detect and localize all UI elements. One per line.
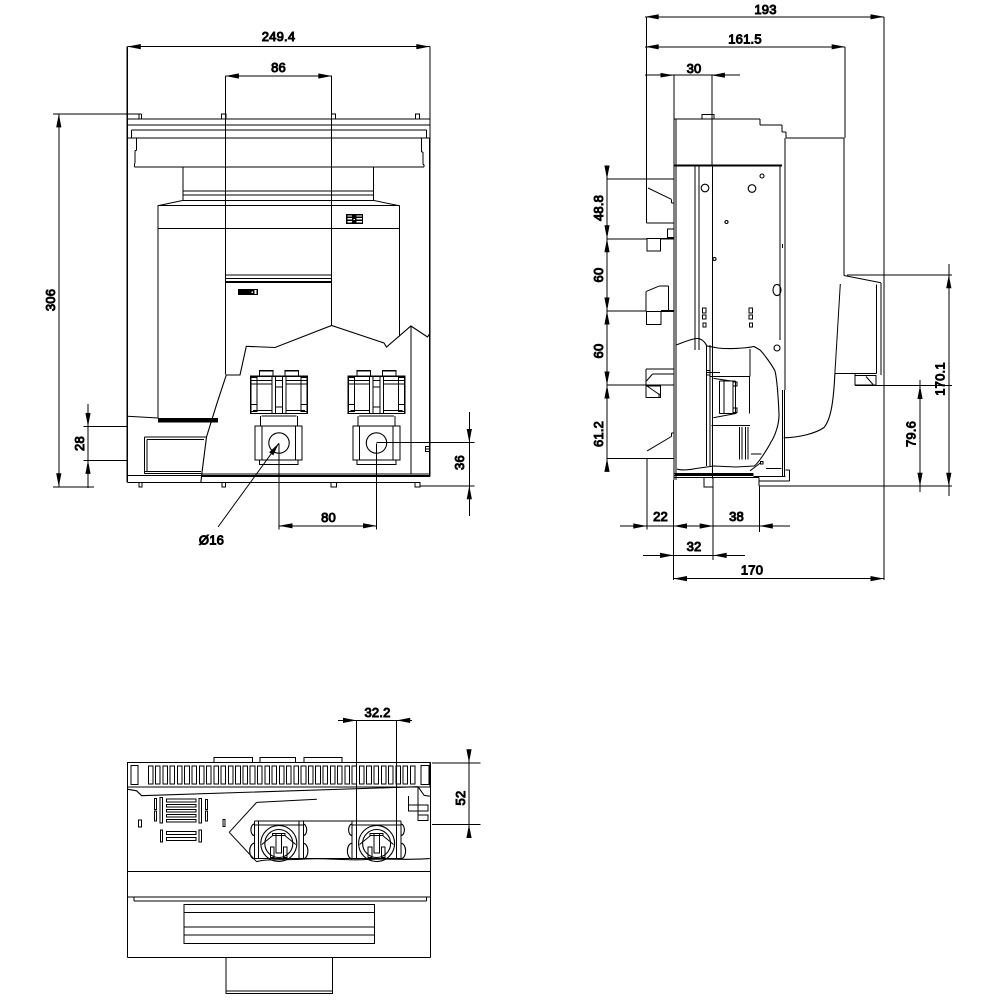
svg-text:38: 38 (729, 509, 744, 524)
svg-text:28: 28 (72, 436, 87, 451)
svg-text:32.2: 32.2 (364, 705, 390, 720)
svg-text:60: 60 (591, 268, 606, 283)
svg-text:52: 52 (453, 791, 468, 806)
svg-text:170.1: 170.1 (933, 362, 948, 396)
svg-text:30: 30 (687, 61, 702, 76)
svg-text:Ø16: Ø16 (199, 533, 224, 548)
svg-text:306: 306 (43, 289, 58, 311)
svg-text:79.6: 79.6 (904, 421, 919, 447)
svg-text:48.8: 48.8 (591, 195, 606, 221)
svg-text:36: 36 (452, 455, 467, 470)
svg-text:61.2: 61.2 (591, 421, 606, 447)
svg-text:249.4: 249.4 (262, 29, 296, 44)
svg-text:60: 60 (591, 344, 606, 359)
svg-text:22: 22 (653, 509, 668, 524)
svg-text:161.5: 161.5 (728, 31, 762, 46)
svg-text:193: 193 (754, 2, 776, 17)
svg-text:170: 170 (741, 563, 763, 578)
svg-text:32: 32 (687, 539, 702, 554)
svg-text:86: 86 (271, 60, 286, 75)
svg-text:80: 80 (321, 510, 336, 525)
